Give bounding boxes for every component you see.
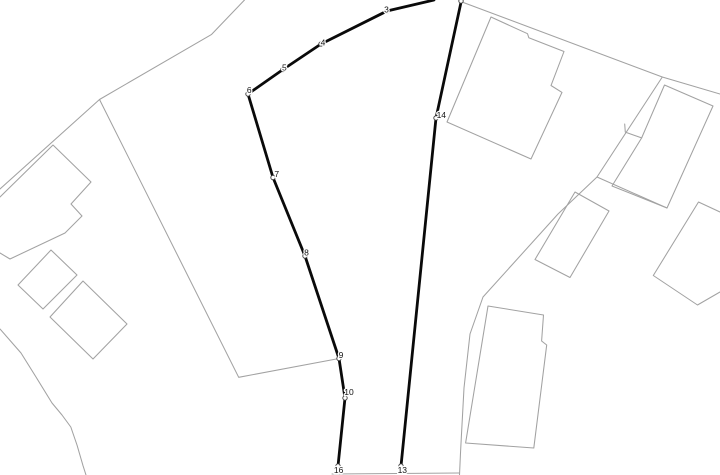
svg-text:9: 9 <box>339 350 344 360</box>
svg-text:6: 6 <box>247 85 252 95</box>
svg-text:7: 7 <box>274 169 279 179</box>
svg-text:10: 10 <box>344 387 354 397</box>
svg-text:5: 5 <box>282 63 287 73</box>
svg-text:3: 3 <box>384 5 389 15</box>
svg-text:8: 8 <box>304 248 309 258</box>
svg-text:14: 14 <box>437 110 447 120</box>
svg-text:13: 13 <box>398 465 408 475</box>
svg-text:16: 16 <box>334 465 344 475</box>
svg-text:4: 4 <box>321 38 326 48</box>
